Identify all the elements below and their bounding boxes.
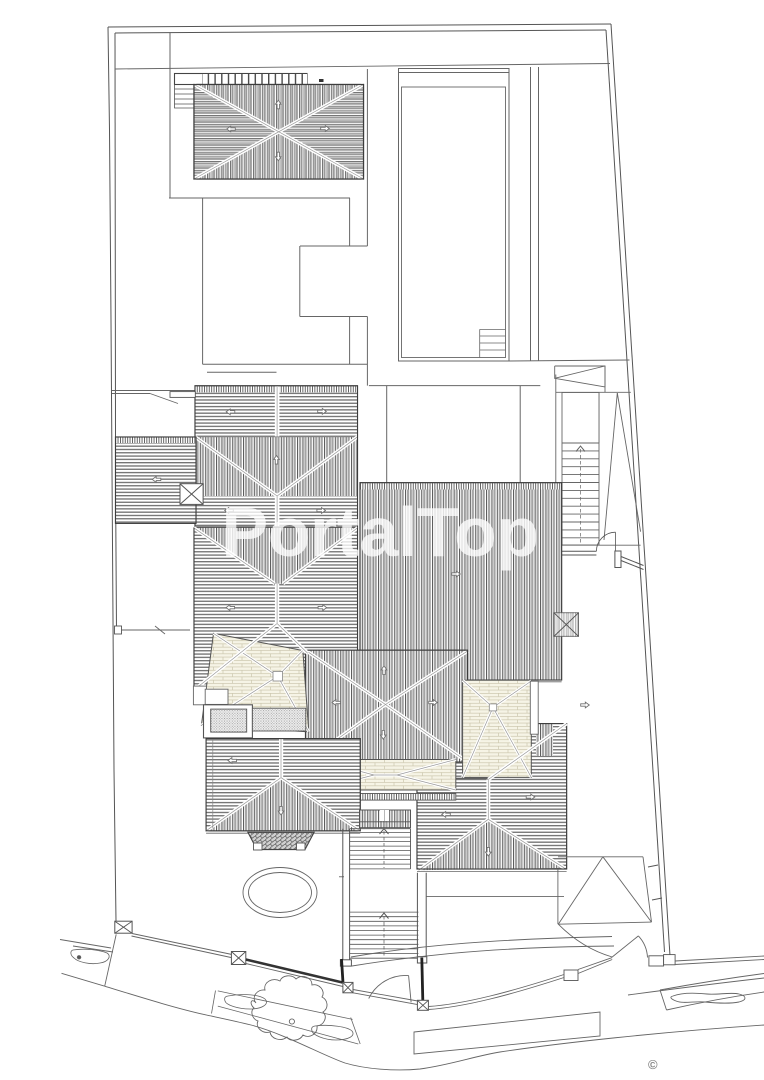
svg-text:©: ©: [648, 1057, 658, 1072]
svg-text:PortalTop: PortalTop: [222, 493, 539, 571]
